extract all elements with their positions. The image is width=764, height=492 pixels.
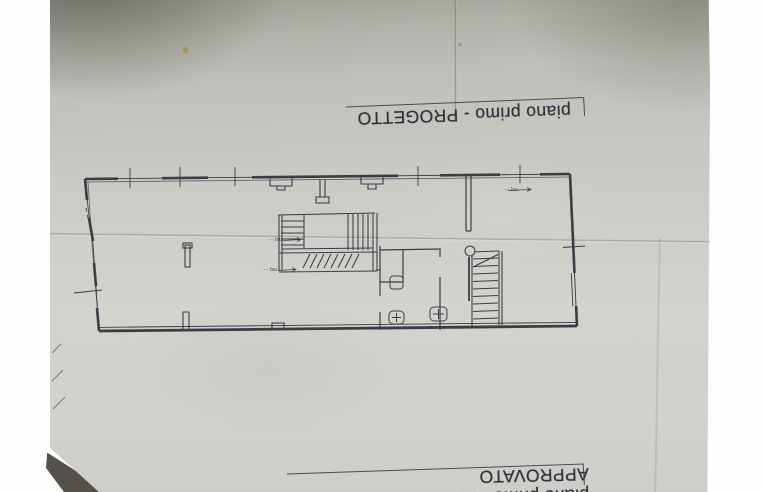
area-annotation-1: mq ····: [267, 236, 282, 242]
partition-wall-top: [466, 176, 471, 231]
left-edge-marks: [52, 344, 65, 409]
sheet-title-progetto-approvato: piano primo - PROGETTO APPROVATO: [283, 470, 590, 492]
area-annotation-3: mq ····: [503, 186, 518, 192]
bathroom-walls: [377, 246, 441, 330]
main-staircase: [278, 213, 377, 272]
photo-of-floor-plan-sheet: mq ···· mq ···· mq ···· piano primo - PR…: [0, 0, 764, 492]
secondary-staircase: [465, 246, 502, 326]
area-annotation-2: mq ····: [262, 266, 277, 272]
floor-plan-drawing: mq ···· mq ···· mq ····: [0, 0, 764, 492]
title-block-lines: [287, 98, 585, 486]
interior-pillars: [183, 243, 284, 330]
bathroom-fixtures: [389, 276, 447, 324]
wall-niches: [270, 177, 383, 203]
